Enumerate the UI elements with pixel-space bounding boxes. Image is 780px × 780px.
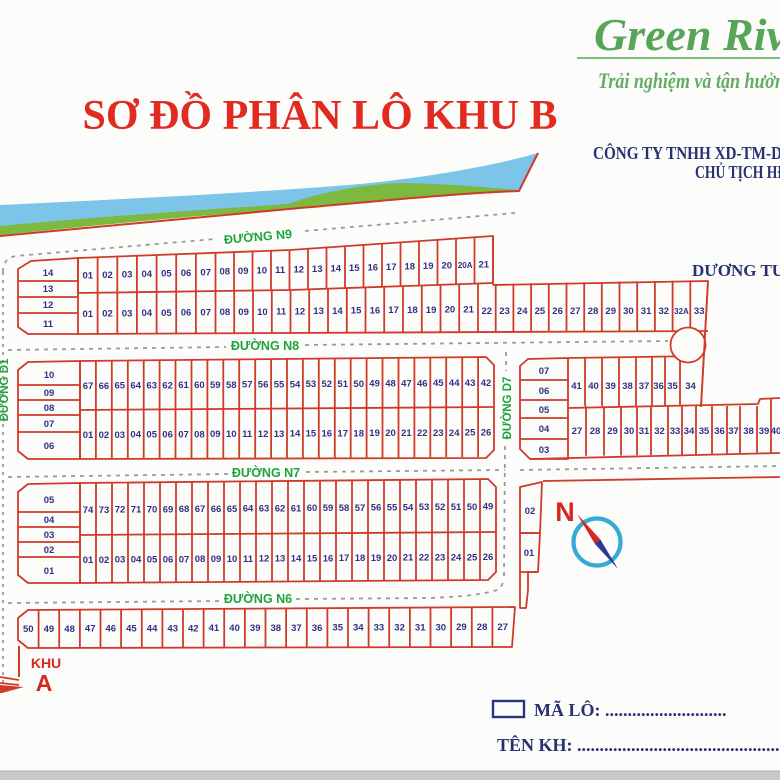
- svg-text:14: 14: [331, 264, 342, 275]
- svg-text:57: 57: [355, 503, 366, 514]
- svg-text:09: 09: [210, 429, 221, 440]
- svg-text:17: 17: [386, 262, 397, 273]
- svg-text:39: 39: [250, 623, 261, 634]
- svg-text:40: 40: [588, 381, 599, 392]
- svg-text:38: 38: [743, 426, 754, 437]
- svg-text:03: 03: [115, 555, 126, 566]
- svg-text:07: 07: [539, 366, 550, 377]
- svg-text:03: 03: [115, 430, 126, 441]
- svg-text:12: 12: [259, 554, 270, 565]
- svg-text:64: 64: [130, 381, 141, 392]
- svg-text:05: 05: [161, 269, 172, 280]
- svg-text:12: 12: [43, 300, 54, 311]
- svg-text:17: 17: [337, 428, 348, 439]
- svg-text:13: 13: [43, 284, 54, 295]
- svg-text:18: 18: [405, 262, 416, 273]
- svg-text:49: 49: [483, 502, 494, 513]
- svg-text:26: 26: [552, 306, 563, 317]
- svg-text:23: 23: [435, 553, 446, 564]
- svg-text:06: 06: [181, 268, 192, 279]
- svg-text:11: 11: [275, 265, 286, 276]
- svg-text:60: 60: [307, 503, 318, 514]
- svg-text:12: 12: [294, 265, 305, 276]
- svg-text:33: 33: [670, 426, 681, 437]
- svg-text:14: 14: [332, 306, 343, 317]
- svg-text:07: 07: [44, 419, 55, 430]
- svg-text:03: 03: [539, 445, 550, 456]
- svg-text:43: 43: [167, 623, 178, 634]
- svg-text:Trải nghiệm và tận hưởng: Trải nghiệm và tận hưởng: [598, 68, 780, 93]
- svg-text:65: 65: [227, 504, 238, 515]
- svg-text:52: 52: [435, 502, 446, 513]
- svg-text:37: 37: [728, 426, 739, 437]
- svg-text:67: 67: [83, 381, 94, 392]
- svg-text:59: 59: [323, 503, 334, 514]
- svg-text:26: 26: [481, 428, 492, 439]
- svg-text:20: 20: [387, 553, 398, 564]
- svg-text:ĐƯỜNG N8: ĐƯỜNG N8: [231, 338, 299, 353]
- svg-text:48: 48: [385, 379, 396, 390]
- svg-text:18: 18: [407, 305, 418, 316]
- svg-text:06: 06: [163, 554, 174, 565]
- svg-text:05: 05: [539, 405, 550, 416]
- svg-text:26: 26: [483, 552, 494, 563]
- svg-text:55: 55: [387, 503, 398, 514]
- svg-text:04: 04: [142, 308, 153, 319]
- svg-text:31: 31: [641, 306, 652, 317]
- svg-text:58: 58: [339, 503, 350, 514]
- svg-text:30: 30: [624, 426, 635, 437]
- svg-text:01: 01: [83, 271, 94, 282]
- svg-text:74: 74: [83, 505, 94, 516]
- svg-text:51: 51: [451, 502, 462, 513]
- svg-text:10: 10: [257, 307, 268, 318]
- svg-text:25: 25: [465, 428, 476, 439]
- svg-text:06: 06: [181, 308, 192, 319]
- svg-text:54: 54: [403, 502, 414, 513]
- svg-text:14: 14: [43, 268, 54, 279]
- svg-text:16: 16: [323, 553, 334, 564]
- svg-text:50: 50: [467, 502, 478, 513]
- svg-text:40: 40: [229, 623, 240, 634]
- svg-text:42: 42: [188, 623, 199, 634]
- svg-text:25: 25: [535, 306, 546, 317]
- svg-text:38: 38: [271, 623, 282, 634]
- svg-text:33: 33: [694, 306, 705, 317]
- svg-text:71: 71: [131, 505, 142, 516]
- svg-text:03: 03: [44, 530, 55, 541]
- svg-text:40: 40: [771, 426, 780, 437]
- svg-text:62: 62: [275, 503, 286, 514]
- svg-text:24: 24: [449, 428, 460, 439]
- svg-text:44: 44: [449, 378, 460, 389]
- svg-text:12: 12: [295, 306, 306, 317]
- svg-text:06: 06: [539, 386, 550, 397]
- svg-text:11: 11: [243, 554, 254, 565]
- svg-text:39: 39: [759, 426, 770, 437]
- svg-text:35: 35: [332, 623, 343, 634]
- svg-text:05: 05: [161, 308, 172, 319]
- svg-text:11: 11: [43, 319, 54, 330]
- svg-text:32A: 32A: [674, 307, 689, 316]
- svg-text:34: 34: [353, 623, 364, 634]
- svg-text:ĐƯỜNG N7: ĐƯỜNG N7: [232, 465, 300, 480]
- svg-text:SƠ ĐỒ PHÂN LÔ KHU B: SƠ ĐỒ PHÂN LÔ KHU B: [83, 91, 558, 139]
- svg-text:72: 72: [115, 505, 126, 516]
- svg-text:34: 34: [685, 381, 696, 392]
- svg-text:01: 01: [83, 430, 94, 441]
- svg-text:48: 48: [64, 624, 75, 635]
- svg-text:46: 46: [106, 624, 117, 635]
- svg-text:TÊN KH: ......................: TÊN KH: ................................…: [497, 734, 780, 755]
- svg-text:61: 61: [178, 380, 189, 391]
- svg-text:09: 09: [44, 388, 55, 399]
- svg-text:51: 51: [337, 379, 348, 390]
- svg-text:27: 27: [572, 426, 583, 437]
- svg-text:09: 09: [238, 266, 249, 277]
- svg-text:MÃ LÔ: .......................: MÃ LÔ: ...........................: [534, 699, 727, 720]
- svg-text:KHU: KHU: [31, 655, 61, 671]
- svg-text:69: 69: [163, 504, 174, 515]
- svg-text:14: 14: [290, 429, 301, 440]
- svg-text:01: 01: [83, 555, 94, 566]
- svg-text:10: 10: [257, 266, 268, 277]
- svg-text:13: 13: [313, 306, 324, 317]
- svg-text:20: 20: [442, 261, 453, 272]
- svg-text:06: 06: [44, 441, 55, 452]
- svg-text:53: 53: [419, 502, 430, 513]
- svg-text:66: 66: [99, 381, 110, 392]
- svg-text:16: 16: [322, 429, 333, 440]
- svg-text:28: 28: [477, 622, 488, 633]
- svg-text:63: 63: [146, 380, 157, 391]
- svg-text:23: 23: [433, 428, 444, 439]
- svg-text:22: 22: [417, 428, 428, 439]
- svg-text:21: 21: [463, 304, 474, 315]
- svg-text:Green River: Green River: [594, 9, 780, 60]
- svg-text:29: 29: [607, 426, 618, 437]
- svg-text:70: 70: [147, 504, 158, 515]
- svg-text:DƯƠNG TUYẾN: DƯƠNG TUYẾN: [692, 261, 780, 280]
- svg-text:50: 50: [23, 624, 34, 635]
- svg-text:57: 57: [242, 380, 253, 391]
- svg-text:05: 05: [44, 495, 55, 506]
- svg-text:07: 07: [179, 554, 190, 565]
- svg-text:22: 22: [419, 553, 430, 564]
- svg-text:33: 33: [374, 623, 385, 634]
- svg-text:43: 43: [465, 378, 476, 389]
- svg-text:08: 08: [194, 429, 205, 440]
- svg-text:ĐƯỜNG D1: ĐƯỜNG D1: [0, 358, 11, 421]
- svg-text:18: 18: [355, 553, 366, 564]
- svg-text:20A: 20A: [458, 261, 473, 270]
- svg-text:11: 11: [242, 429, 253, 440]
- svg-text:21: 21: [401, 428, 412, 439]
- svg-text:45: 45: [126, 624, 137, 635]
- svg-text:28: 28: [590, 426, 601, 437]
- svg-text:66: 66: [211, 504, 222, 515]
- svg-text:53: 53: [306, 379, 317, 390]
- svg-text:06: 06: [162, 430, 173, 441]
- svg-text:42: 42: [481, 378, 492, 389]
- svg-text:68: 68: [179, 504, 190, 515]
- svg-text:29: 29: [605, 306, 616, 317]
- svg-text:12: 12: [258, 429, 269, 440]
- svg-text:15: 15: [306, 429, 317, 440]
- svg-text:04: 04: [131, 555, 142, 566]
- svg-text:19: 19: [369, 428, 380, 439]
- svg-text:36: 36: [653, 381, 664, 392]
- svg-text:11: 11: [276, 307, 287, 318]
- svg-text:36: 36: [312, 623, 323, 634]
- svg-text:05: 05: [147, 555, 158, 566]
- svg-text:35: 35: [699, 426, 710, 437]
- svg-text:32: 32: [394, 623, 405, 634]
- svg-text:01: 01: [524, 548, 535, 559]
- svg-text:01: 01: [44, 566, 55, 577]
- svg-text:21: 21: [403, 553, 414, 564]
- svg-text:41: 41: [571, 381, 582, 392]
- svg-text:37: 37: [639, 381, 650, 392]
- svg-text:20: 20: [445, 305, 456, 316]
- svg-text:55: 55: [274, 379, 285, 390]
- svg-text:25: 25: [467, 552, 478, 563]
- svg-text:07: 07: [178, 429, 189, 440]
- svg-text:02: 02: [99, 555, 110, 566]
- svg-text:56: 56: [371, 503, 382, 514]
- svg-text:09: 09: [238, 307, 249, 318]
- svg-text:27: 27: [497, 622, 508, 633]
- svg-text:03: 03: [122, 270, 133, 281]
- svg-text:31: 31: [639, 426, 650, 437]
- svg-text:59: 59: [210, 380, 221, 391]
- svg-text:08: 08: [195, 554, 206, 565]
- svg-text:47: 47: [85, 624, 96, 635]
- svg-text:10: 10: [44, 370, 55, 381]
- svg-text:67: 67: [195, 504, 206, 515]
- svg-text:60: 60: [194, 380, 205, 391]
- svg-text:20: 20: [385, 428, 396, 439]
- svg-text:29: 29: [456, 622, 467, 633]
- svg-text:44: 44: [147, 624, 158, 635]
- svg-text:16: 16: [370, 305, 381, 316]
- svg-text:30: 30: [436, 622, 447, 633]
- svg-text:35: 35: [667, 381, 678, 392]
- svg-text:02: 02: [99, 430, 110, 441]
- svg-text:30: 30: [623, 306, 634, 317]
- svg-text:46: 46: [417, 378, 428, 389]
- svg-text:13: 13: [274, 429, 285, 440]
- svg-text:04: 04: [44, 515, 55, 526]
- svg-text:ĐƯỜNG D7: ĐƯỜNG D7: [501, 377, 514, 440]
- svg-text:54: 54: [290, 379, 301, 390]
- svg-text:02: 02: [102, 270, 113, 281]
- svg-text:62: 62: [162, 380, 173, 391]
- svg-text:05: 05: [146, 430, 157, 441]
- svg-text:23: 23: [499, 306, 510, 317]
- svg-text:24: 24: [451, 552, 462, 563]
- svg-text:09: 09: [211, 554, 222, 565]
- svg-text:CHỦ TỊCH HĐQT: CHỦ TỊCH HĐQT: [695, 161, 780, 182]
- svg-text:01: 01: [83, 309, 94, 320]
- svg-text:10: 10: [227, 554, 238, 565]
- svg-text:15: 15: [307, 553, 318, 564]
- svg-text:02: 02: [102, 309, 113, 320]
- svg-text:27: 27: [570, 306, 581, 317]
- svg-text:19: 19: [426, 305, 437, 316]
- svg-text:36: 36: [714, 426, 725, 437]
- svg-text:64: 64: [243, 504, 254, 515]
- svg-text:28: 28: [588, 306, 599, 317]
- svg-text:31: 31: [415, 622, 426, 633]
- svg-text:47: 47: [401, 378, 412, 389]
- svg-text:38: 38: [622, 381, 633, 392]
- svg-text:49: 49: [369, 379, 380, 390]
- svg-text:02: 02: [44, 545, 55, 556]
- svg-text:56: 56: [258, 380, 269, 391]
- svg-text:37: 37: [291, 623, 302, 634]
- svg-text:17: 17: [388, 305, 399, 316]
- svg-text:73: 73: [99, 505, 110, 516]
- svg-text:CÔNG TY TNHH XD-TM-DV: CÔNG TY TNHH XD-TM-DV: [593, 142, 780, 163]
- svg-text:A: A: [36, 670, 53, 696]
- svg-text:34: 34: [684, 426, 695, 437]
- svg-text:15: 15: [351, 306, 362, 317]
- svg-text:07: 07: [200, 267, 211, 278]
- svg-text:ĐƯỜNG N6: ĐƯỜNG N6: [224, 591, 292, 606]
- svg-text:03: 03: [122, 308, 133, 319]
- svg-text:24: 24: [517, 306, 528, 317]
- svg-text:14: 14: [291, 554, 302, 565]
- svg-text:13: 13: [312, 264, 323, 275]
- svg-text:07: 07: [200, 308, 211, 319]
- svg-text:65: 65: [115, 381, 126, 392]
- svg-text:17: 17: [339, 553, 350, 564]
- svg-text:08: 08: [44, 403, 55, 414]
- svg-text:08: 08: [220, 307, 231, 318]
- svg-text:32: 32: [654, 426, 665, 437]
- svg-text:16: 16: [368, 263, 379, 274]
- svg-text:49: 49: [44, 624, 55, 635]
- svg-text:19: 19: [423, 261, 434, 272]
- svg-text:52: 52: [322, 379, 333, 390]
- svg-text:41: 41: [209, 623, 220, 634]
- svg-text:21: 21: [479, 260, 490, 271]
- svg-text:13: 13: [275, 554, 286, 565]
- svg-text:50: 50: [353, 379, 364, 390]
- svg-text:N: N: [555, 497, 575, 527]
- svg-text:19: 19: [371, 553, 382, 564]
- svg-text:04: 04: [142, 269, 153, 280]
- svg-text:15: 15: [349, 263, 360, 274]
- svg-text:04: 04: [539, 424, 550, 435]
- svg-text:08: 08: [220, 267, 231, 278]
- svg-text:39: 39: [605, 381, 616, 392]
- svg-text:22: 22: [482, 306, 493, 317]
- svg-text:04: 04: [130, 430, 141, 441]
- svg-text:02: 02: [525, 506, 536, 517]
- svg-text:10: 10: [226, 429, 237, 440]
- svg-text:45: 45: [433, 378, 444, 389]
- svg-text:32: 32: [659, 306, 670, 317]
- svg-text:58: 58: [226, 380, 237, 391]
- svg-text:61: 61: [291, 503, 302, 514]
- svg-text:18: 18: [353, 428, 364, 439]
- svg-text:63: 63: [259, 504, 270, 515]
